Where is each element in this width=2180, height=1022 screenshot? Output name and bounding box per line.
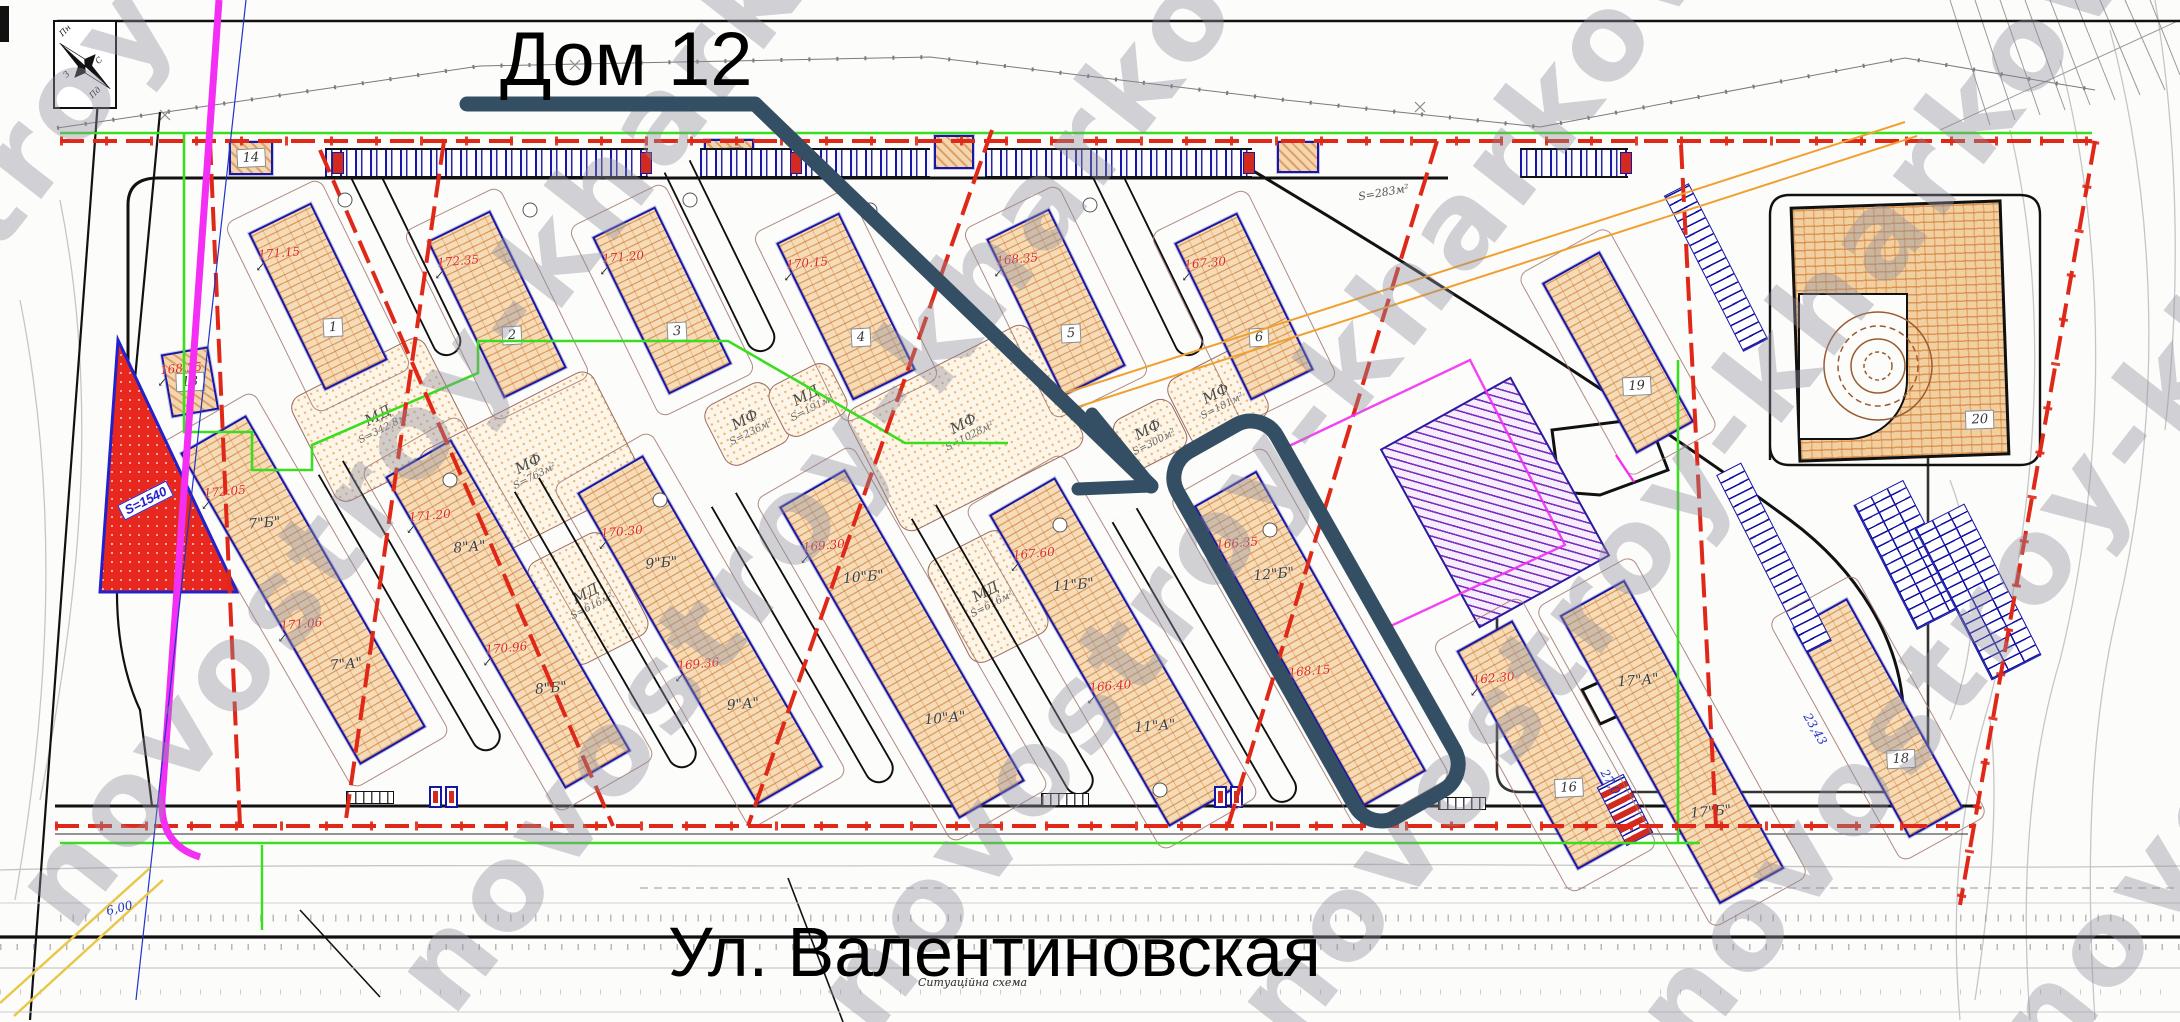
parking-row-bottom: [1438, 797, 1486, 810]
hatch-corner: [1940, 0, 2180, 130]
building-section-label: 10"Б": [842, 567, 884, 587]
compass-rose: Пн С З Пд: [53, 20, 117, 109]
building-section-label: 11"Б": [1052, 575, 1094, 595]
building-elevation-label: 166.35: [1216, 534, 1260, 564]
building-20-courtyard: [1798, 293, 1908, 440]
parking-strip: [325, 148, 648, 178]
building-elevation-label: 171.20: [408, 507, 452, 537]
parking-row-bottom: [1041, 793, 1089, 806]
bus-stop-pair-symbol: [429, 786, 458, 808]
building-section-label: 12"Б": [1253, 564, 1295, 584]
building-elevation-label: 172.35: [437, 252, 481, 282]
building-elevation-label: 171.06: [280, 615, 324, 645]
building-number: 1: [322, 317, 343, 337]
stall-symbol: [429, 786, 442, 808]
building-elevation-label: 170.96: [485, 639, 529, 669]
frame-corner-mark: [0, 6, 9, 42]
building-14: 14: [229, 141, 273, 175]
parking-cell-red: [640, 152, 652, 174]
building-number: 5: [1060, 323, 1081, 343]
building-number: 14: [236, 148, 266, 168]
building-number: 3: [666, 321, 687, 341]
building-section-label: 9"Б": [645, 554, 678, 573]
building-number: 16: [1554, 778, 1584, 798]
survey-fence-line: [57, 57, 2095, 128]
building-section-label: 17"Б": [1690, 802, 1732, 822]
building-section-label: 8"Б": [534, 679, 567, 698]
building-elevation-label: 171.20: [602, 248, 646, 278]
building-number: 18: [1886, 749, 1916, 769]
street-name-label: Ул. Валентиновская: [668, 912, 1321, 992]
bus-stop-pair-symbol: [1214, 786, 1243, 808]
parking-strip: [700, 148, 930, 178]
building-section-label: 7"А": [329, 655, 363, 674]
building-section-label: 8"А": [452, 538, 486, 557]
parking-strip: [1520, 148, 1628, 178]
building-elevation-label: 168.15: [1288, 662, 1332, 692]
building-number: 13: [175, 372, 205, 392]
parking-cell-red: [332, 152, 344, 174]
site-plan-drawing: 20 S=1540 Дом 12 Ул. Валентиновская Ситу…: [0, 0, 2180, 1022]
parking-strip: [985, 148, 1252, 178]
building-elevation-label: 171.15: [258, 244, 302, 274]
building-elevation-label: 170.15: [786, 254, 830, 284]
building-19: [934, 135, 974, 169]
building-section-label: 17"А": [1617, 671, 1660, 691]
building-20-number: 20: [1965, 410, 1994, 430]
building-elevation-label: 169.36: [677, 655, 721, 685]
building-elevation-label: 167.30: [1184, 254, 1228, 284]
building-number: 4: [850, 327, 871, 347]
building-elevation-label: 166.40: [1089, 677, 1133, 707]
building-elevation-label: 167.60: [1012, 545, 1056, 575]
annotation-title: Дом 12: [500, 16, 753, 103]
building-elevation-label: 169.30: [802, 537, 846, 567]
building-number: 6: [1248, 327, 1269, 347]
building-section-label: 10"А": [924, 709, 967, 729]
building-section-label: 7"Б": [248, 514, 281, 533]
building-elevation-label: 170.30: [600, 523, 644, 553]
parking-cell-red: [1243, 152, 1255, 174]
building-20: [1277, 141, 1319, 173]
building-elevation-label: 162.30: [1472, 669, 1516, 699]
parking-cell-red: [1620, 152, 1632, 174]
building-number: 2: [501, 325, 522, 345]
building-elevation-label: 172.05: [203, 483, 247, 513]
stall-symbol: [1214, 786, 1227, 808]
building-section-label: 11"А": [1134, 717, 1177, 737]
parking-row-bottom: [346, 791, 394, 804]
building-elevation-label: 168.35: [996, 250, 1040, 280]
parking-cell-red: [790, 152, 802, 174]
stall-symbol: [445, 786, 458, 808]
building-number: 19: [1622, 375, 1652, 395]
stall-symbol: [1230, 786, 1243, 808]
building-section-label: 9"А": [726, 695, 760, 714]
